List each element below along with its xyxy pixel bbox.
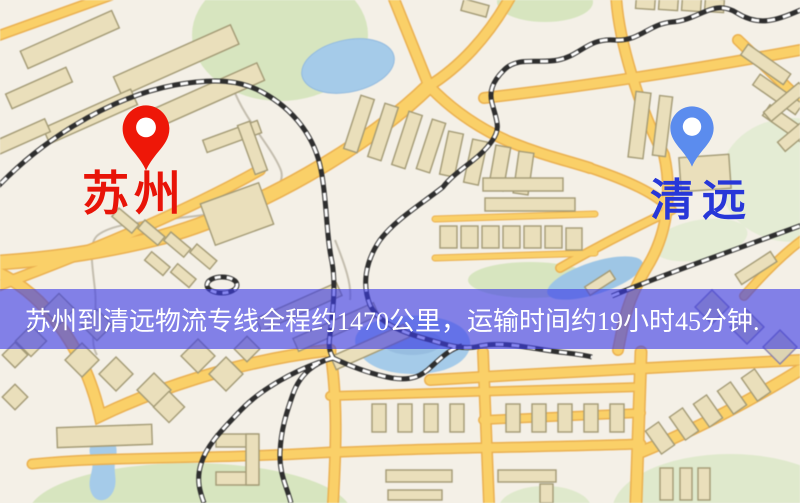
map-screenshot: 苏州 清远 苏州到清远物流专线全程约1470公里，运输时间约19小时45分钟. xyxy=(0,0,800,503)
marker-pin-qingyuan[interactable] xyxy=(665,105,719,168)
info-banner-text: 苏州到清远物流专线全程约1470公里，运输时间约19小时45分钟. xyxy=(0,301,760,338)
map-pin-icon xyxy=(117,104,175,172)
pin-body xyxy=(123,105,170,170)
info-banner: 苏州到清远物流专线全程约1470公里，运输时间约19小时45分钟. xyxy=(0,289,800,349)
pin-body xyxy=(670,106,713,166)
map-canvas xyxy=(0,0,800,503)
marker-label-qingyuan: 清远 xyxy=(650,179,754,223)
marker-pin-suzhou[interactable] xyxy=(117,104,175,172)
pin-hole xyxy=(136,117,156,137)
marker-label-suzhou: 苏州 xyxy=(82,172,186,219)
pin-hole xyxy=(683,117,701,135)
map-pin-icon xyxy=(665,105,719,168)
